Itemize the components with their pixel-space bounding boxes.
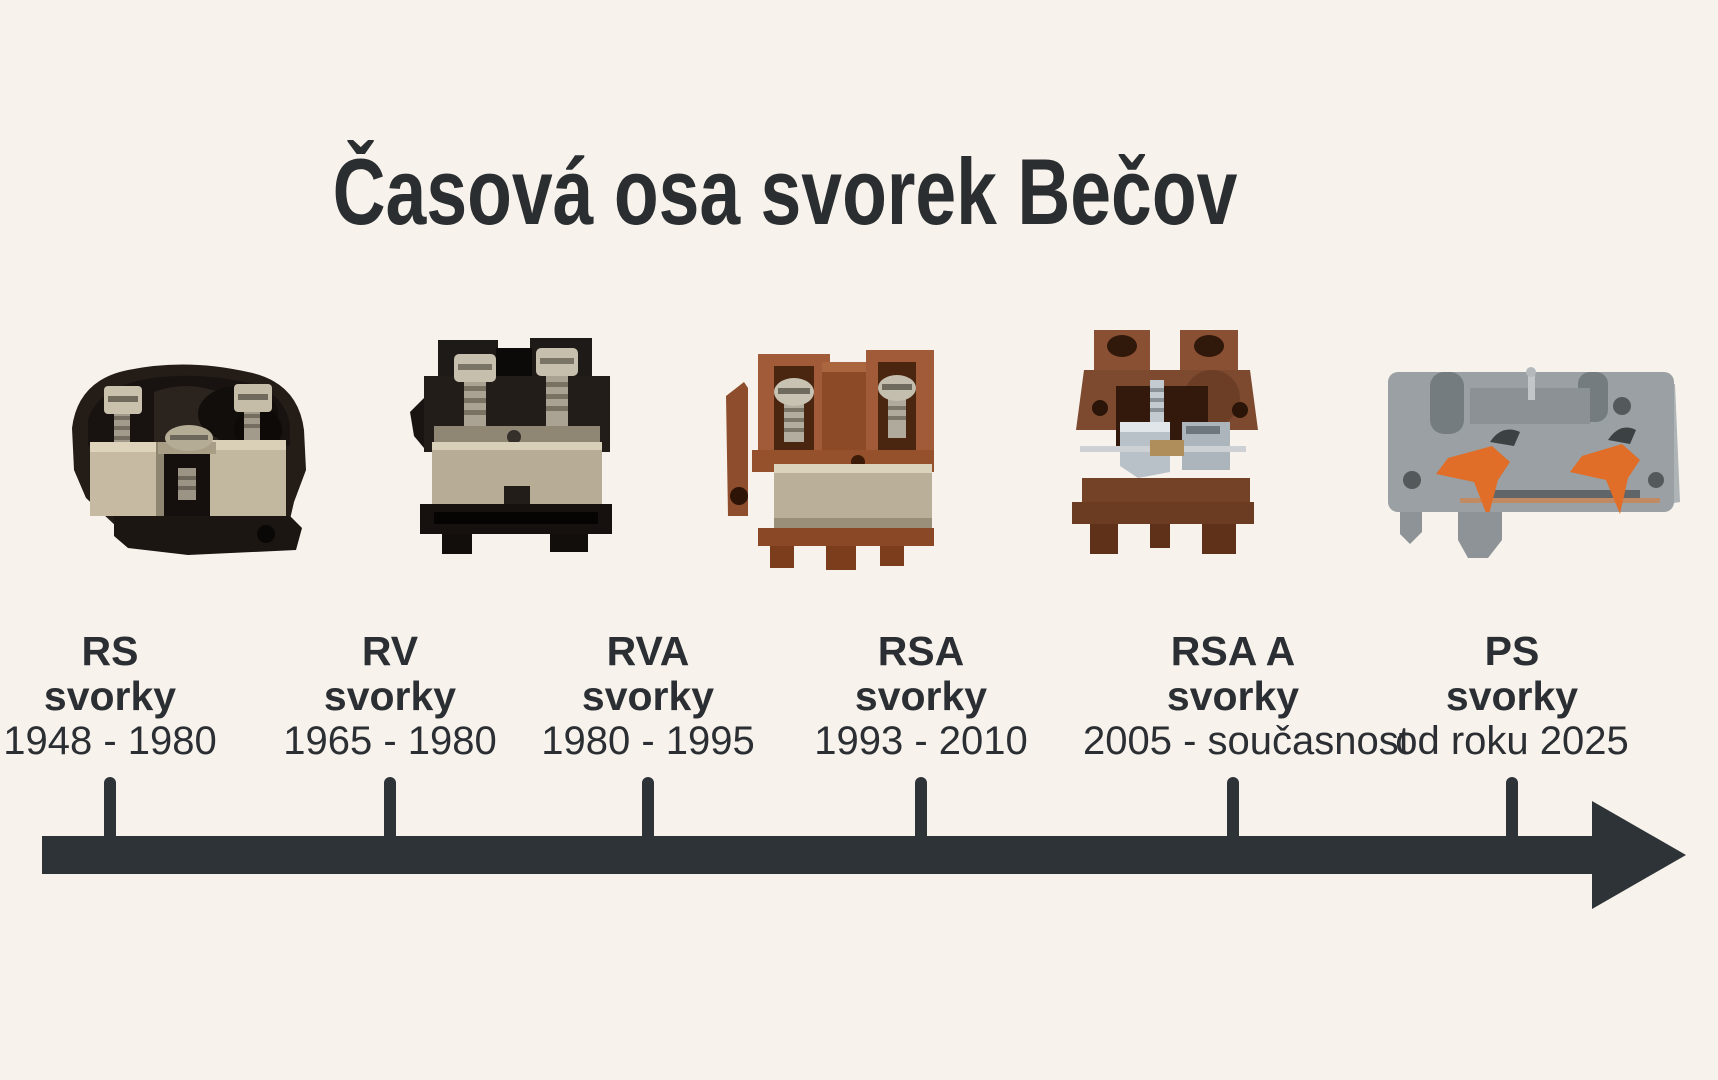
item-name: RS [0, 628, 260, 674]
item-kind: svorky [771, 674, 1071, 719]
item-name: RSA A [1083, 628, 1383, 674]
timeline-infographic: Časová osa svorek Bečov [0, 0, 1718, 1080]
item-name: PS [1362, 628, 1662, 674]
timeline-tick [642, 777, 654, 845]
ps-terminal-photo [1370, 362, 1686, 562]
item-name: RV [240, 628, 540, 674]
timeline-tick [1227, 777, 1239, 845]
item-kind: svorky [498, 674, 798, 719]
item-kind: svorky [0, 674, 260, 719]
timeline-item-rva: RVA svorky 1980 - 1995 [498, 628, 798, 764]
rs-terminal-photo [58, 350, 316, 555]
item-kind: svorky [1362, 674, 1662, 719]
rsa-terminal-photo [1054, 330, 1271, 554]
timeline-tick [104, 777, 116, 845]
timeline-item-rsa: RSA svorky 1993 - 2010 [771, 628, 1071, 764]
timeline-tick [915, 777, 927, 845]
rva-terminal-photo [718, 336, 942, 570]
timeline-tick [384, 777, 396, 845]
item-period: 2005 - současnost [1083, 719, 1383, 764]
timeline-item-ps: PS svorky od roku 2025 [1362, 628, 1662, 764]
item-period: 1993 - 2010 [771, 719, 1071, 764]
timeline-item-rv: RV svorky 1965 - 1980 [240, 628, 540, 764]
timeline-item-rs: RS svorky 1948 - 1980 [0, 628, 260, 764]
timeline-axis-bar [42, 836, 1602, 874]
item-period: od roku 2025 [1362, 719, 1662, 764]
arrow-right-icon [1592, 801, 1686, 909]
item-period: 1948 - 1980 [0, 719, 260, 764]
rv-terminal-photo [408, 338, 622, 556]
timeline-item-rsa-a: RSA A svorky 2005 - současnost [1083, 628, 1383, 764]
item-name: RSA [771, 628, 1071, 674]
page-title: Časová osa svorek Bečov [173, 138, 1398, 246]
item-period: 1980 - 1995 [498, 719, 798, 764]
item-kind: svorky [240, 674, 540, 719]
item-name: RVA [498, 628, 798, 674]
timeline-tick [1506, 777, 1518, 845]
item-period: 1965 - 1980 [240, 719, 540, 764]
item-kind: svorky [1083, 674, 1383, 719]
